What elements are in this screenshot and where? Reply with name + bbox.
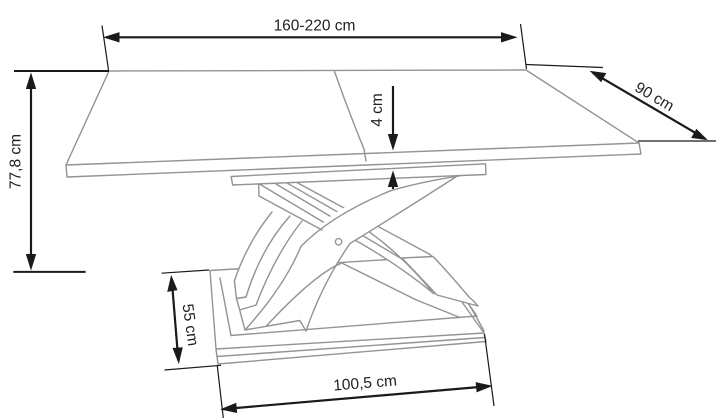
svg-text:160-220 cm: 160-220 cm (274, 18, 356, 35)
svg-text:4 cm: 4 cm (369, 93, 386, 127)
svg-text:77,8 cm: 77,8 cm (8, 134, 25, 189)
